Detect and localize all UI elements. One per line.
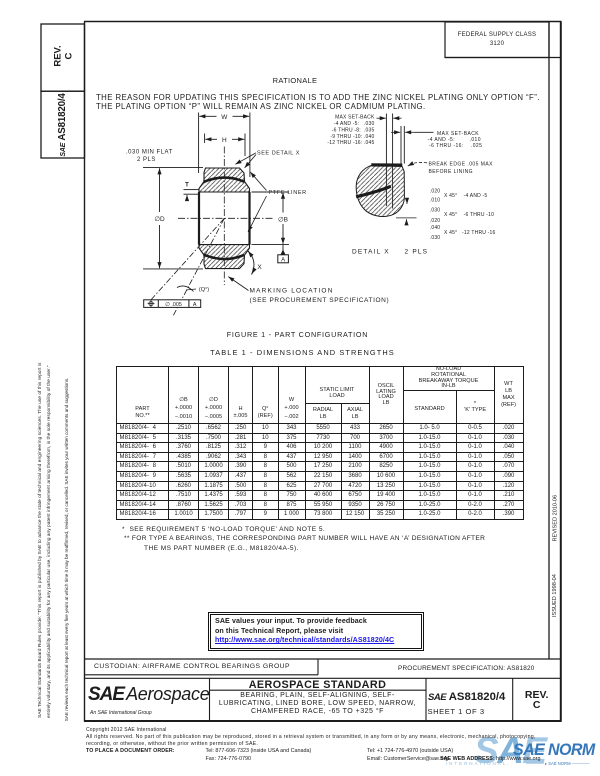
svg-text:.010: .010 [430,198,441,204]
svg-text:∅D: ∅D [154,216,165,223]
svg-text:MARKING LOCATION: MARKING LOCATION [250,288,334,295]
svg-text:BREAK EDGE .005 MAX: BREAK EDGE .005 MAX [429,162,494,168]
svg-text:∅B: ∅B [278,217,288,224]
svg-text:BEFORE LINING: BEFORE LINING [429,169,473,175]
svg-text:A: A [193,302,197,308]
svg-text:.020: .020 [430,218,441,224]
svg-text:-6 THRU -16: .025: -6 THRU -16: .025 [429,143,482,149]
svg-text:W: W [221,114,228,121]
svg-text:.030 MIN FLAT: .030 MIN FLAT [126,150,173,156]
svg-text:PTFE LINER: PTFE LINER [269,190,307,196]
svg-text:X 45° -4 AND -5: X 45° -4 AND -5 [444,193,487,199]
svg-text:X: X [257,264,262,271]
svg-text:-9 THRU -10: .040: -9 THRU -10: .040 [330,134,374,140]
svg-text:-12 THRU -16: .045: -12 THRU -16: .045 [327,140,374,146]
svg-text:.040: .040 [430,225,441,231]
svg-text:.030: .030 [430,208,441,214]
svg-text:∅ .005: ∅ .005 [165,302,182,308]
svg-text:MAX SET-BACK: MAX SET-BACK [335,115,375,121]
svg-text:2 PLS: 2 PLS [405,248,429,255]
svg-text:(Q°): (Q°) [199,287,209,293]
svg-text:(SEE PROCUREMENT SPECIFICATION: (SEE PROCUREMENT SPECIFICATION) [250,297,390,304]
svg-text:.020: .020 [430,188,441,194]
svg-text:2 PLS: 2 PLS [137,157,156,163]
svg-text:X 45° -6 THRU -10: X 45° -6 THRU -10 [444,212,494,218]
svg-text:-6 THRU -8: .035: -6 THRU -8: .035 [332,127,375,133]
svg-text:X 45° -12 THRU -16: X 45° -12 THRU -16 [444,230,495,236]
svg-text:T: T [185,182,189,188]
svg-text:H: H [222,137,227,144]
svg-text:A: A [281,257,285,263]
svg-text:SEE DETAIL X: SEE DETAIL X [257,151,300,157]
svg-text:-4 AND -5: .030: -4 AND -5: .030 [334,121,375,127]
svg-text:DETAIL X: DETAIL X [352,248,390,255]
svg-text:.030: .030 [430,235,441,241]
